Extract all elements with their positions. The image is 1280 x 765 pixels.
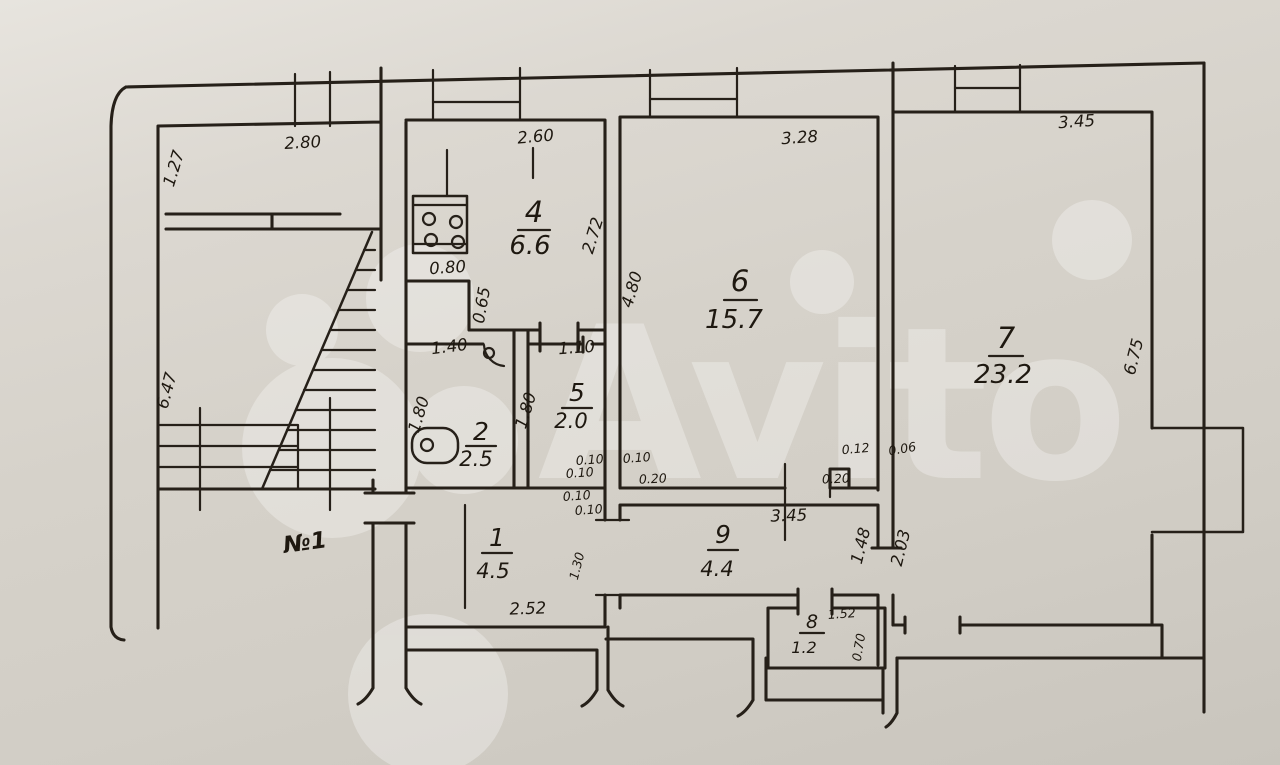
stairwell-walls: [158, 68, 381, 628]
room-8-number: 8: [806, 611, 818, 633]
room-1-number: 1: [489, 523, 505, 552]
dim-hall-door: 1.30: [566, 551, 587, 582]
room-4-area: 6.6: [509, 231, 550, 261]
dim-wall-thickness: 0.20: [638, 470, 667, 486]
dim-bath-width: 1.40: [430, 335, 469, 358]
floor-plan-canvas: Avito: [0, 0, 1280, 765]
dim-room8-depth: 0.70: [849, 632, 869, 662]
room-5-area: 2.0: [554, 409, 587, 433]
dim-stairwell-entry: 1.27: [159, 148, 188, 189]
apartment-number: №1: [281, 527, 329, 559]
dim-wc-width: 1.10: [558, 337, 596, 359]
room-7-number: 7: [997, 321, 1016, 355]
room9-walls: [620, 505, 878, 665]
outer-wall-top: [126, 63, 1204, 87]
hall-door-ticks: [596, 520, 629, 595]
scanned-floor-plan-page: Avito: [0, 0, 1280, 765]
dim-room7-niche: 2.03: [887, 528, 914, 568]
room-7-area: 23.2: [974, 360, 1032, 390]
room-9-number: 9: [715, 520, 731, 549]
dim-kitchen-width: 2.60: [516, 125, 554, 147]
dim-room9-width: 3.45: [770, 505, 807, 525]
stove-icon: [413, 196, 467, 253]
room8-walls: [768, 589, 885, 668]
room-8-area: 1.2: [791, 638, 816, 657]
dim-room9-depth: 1.48: [847, 526, 874, 566]
avito-watermark: Avito: [242, 200, 1132, 765]
dim-wall-thickness: 0.10: [622, 449, 651, 466]
room-1-area: 4.5: [476, 559, 509, 583]
room-6-number: 6: [731, 264, 749, 298]
dim-room6-width: 3.28: [781, 127, 819, 149]
stairwell: [158, 68, 381, 628]
dim-wall-thickness: 0.10: [574, 501, 603, 518]
watermark-logo-circle: [242, 358, 422, 538]
room-4-number: 4: [525, 195, 543, 229]
room-6-area: 15.7: [705, 305, 763, 335]
dim-wc-depth: 1.80: [511, 390, 540, 431]
room-5-number: 5: [569, 378, 585, 407]
room-9-area: 4.4: [700, 557, 733, 581]
dim-stairwell-width: 2.80: [284, 132, 322, 153]
room-2-area: 2.5: [459, 447, 492, 471]
dim-room7-depth: 6.75: [1120, 337, 1147, 377]
dim-kitchen-depth: 2.72: [578, 215, 607, 256]
dim-wall-thickness: 0.12: [841, 440, 870, 457]
dim-room7-width: 3.45: [1058, 111, 1096, 133]
watermark-logo-circle: [266, 294, 338, 366]
dim-kitchen-notch-width: 0.80: [429, 257, 467, 279]
dim-room8-width: 1.52: [827, 605, 856, 622]
dim-wall-thickness: 0.10: [565, 464, 594, 481]
right-window-bay: [1152, 428, 1243, 532]
watermark-logo-circle: [1052, 200, 1132, 280]
outer-wall-left: [111, 87, 126, 640]
room-2-number: 2: [473, 417, 489, 446]
dim-wall-thickness: 0.20: [822, 471, 850, 487]
dim-hall-width: 2.52: [509, 598, 546, 618]
